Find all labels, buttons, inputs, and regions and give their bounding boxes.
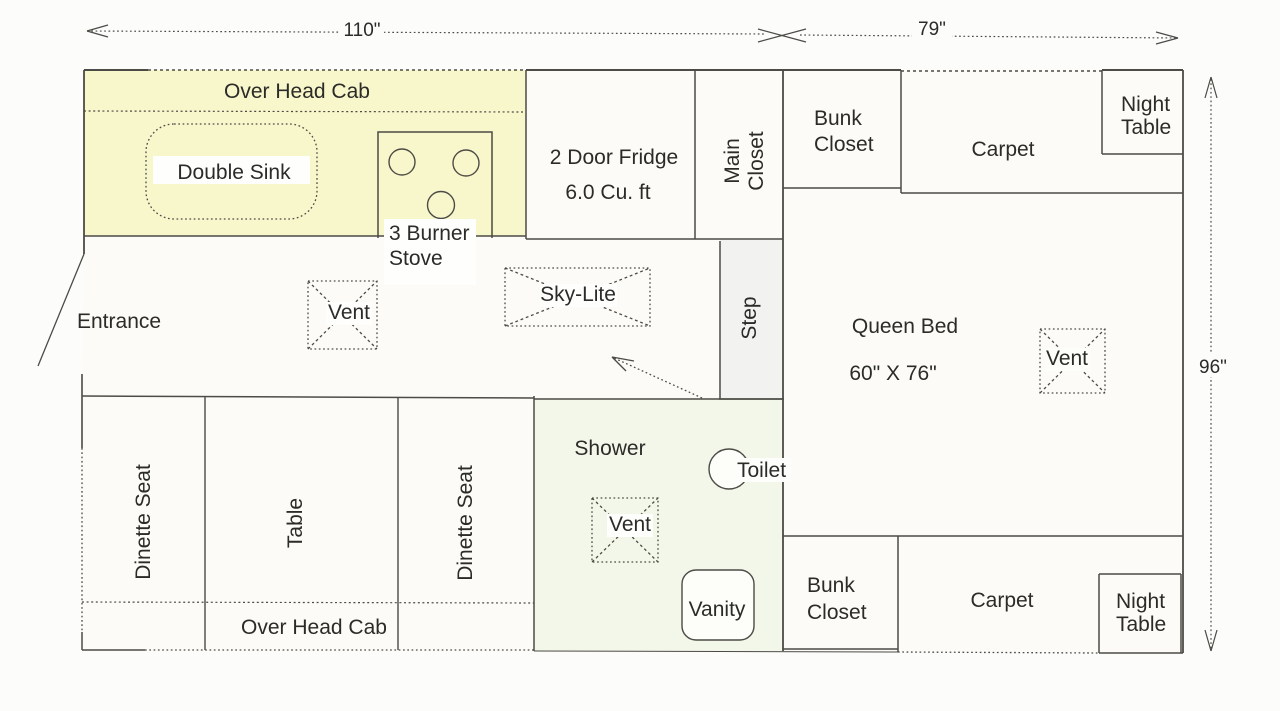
svg-text:Main: Main [721, 138, 744, 184]
svg-text:Over Head Cab: Over Head Cab [241, 616, 387, 639]
svg-text:Vent: Vent [328, 301, 370, 324]
svg-text:Table: Table [1116, 613, 1166, 636]
svg-text:Vanity: Vanity [689, 598, 746, 621]
svg-text:Bunk: Bunk [807, 574, 855, 597]
svg-text:Entrance: Entrance [77, 310, 161, 333]
svg-text:Queen Bed: Queen Bed [852, 315, 958, 338]
svg-text:Shower: Shower [574, 437, 645, 460]
svg-text:Double Sink: Double Sink [177, 161, 291, 184]
svg-text:Vent: Vent [1046, 347, 1088, 370]
svg-text:2 Door Fridge: 2 Door Fridge [550, 146, 678, 169]
svg-text:79": 79" [918, 19, 946, 40]
svg-text:Bunk: Bunk [814, 107, 862, 130]
svg-text:Carpet: Carpet [971, 138, 1034, 161]
svg-text:110": 110" [343, 20, 380, 41]
svg-text:Stove: Stove [389, 247, 443, 270]
svg-text:Step: Step [738, 296, 761, 339]
svg-text:Closet: Closet [807, 601, 867, 624]
svg-text:96": 96" [1199, 357, 1227, 378]
svg-text:Carpet: Carpet [970, 589, 1033, 612]
svg-text:Dinette Seat: Dinette Seat [132, 464, 155, 580]
svg-text:Dinette Seat: Dinette Seat [454, 465, 477, 581]
svg-text:3 Burner: 3 Burner [389, 222, 470, 245]
svg-text:6.0 Cu. ft: 6.0 Cu. ft [565, 181, 650, 204]
svg-text:Table: Table [284, 498, 307, 548]
svg-text:Closet: Closet [745, 131, 768, 191]
svg-text:Over Head Cab: Over Head Cab [224, 80, 370, 103]
svg-text:Night: Night [1121, 93, 1170, 116]
svg-text:Toilet: Toilet [737, 459, 786, 482]
svg-text:Night: Night [1116, 590, 1165, 613]
svg-text:Vent: Vent [609, 513, 651, 536]
svg-text:Sky-Lite: Sky-Lite [540, 283, 616, 306]
svg-text:Table: Table [1121, 116, 1171, 139]
svg-text:60" X 76": 60" X 76" [849, 362, 936, 385]
svg-text:Closet: Closet [814, 133, 874, 156]
